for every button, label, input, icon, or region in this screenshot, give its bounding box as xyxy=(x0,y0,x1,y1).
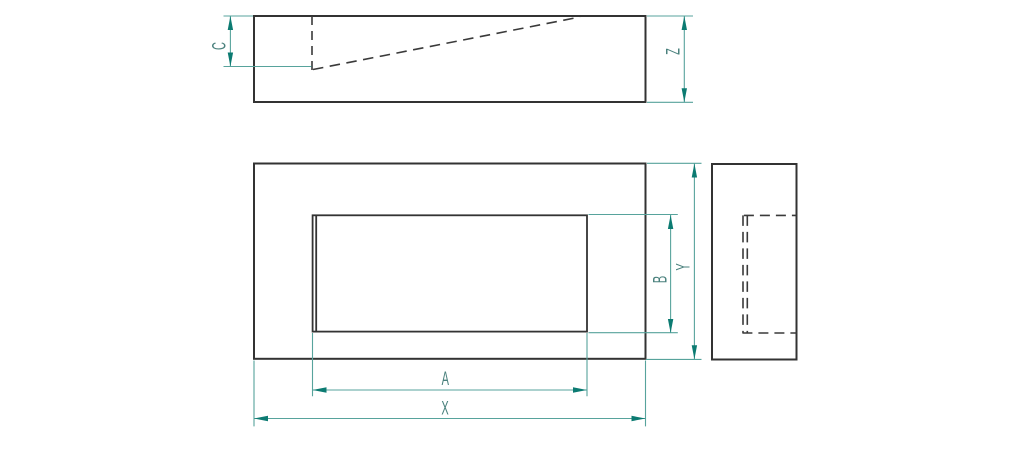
svg-text:Y: Y xyxy=(674,263,695,271)
svg-text:X: X xyxy=(441,399,449,420)
svg-text:Z: Z xyxy=(664,48,685,55)
svg-text:B: B xyxy=(651,276,672,283)
svg-text:C: C xyxy=(210,42,231,50)
svg-text:A: A xyxy=(442,369,450,390)
